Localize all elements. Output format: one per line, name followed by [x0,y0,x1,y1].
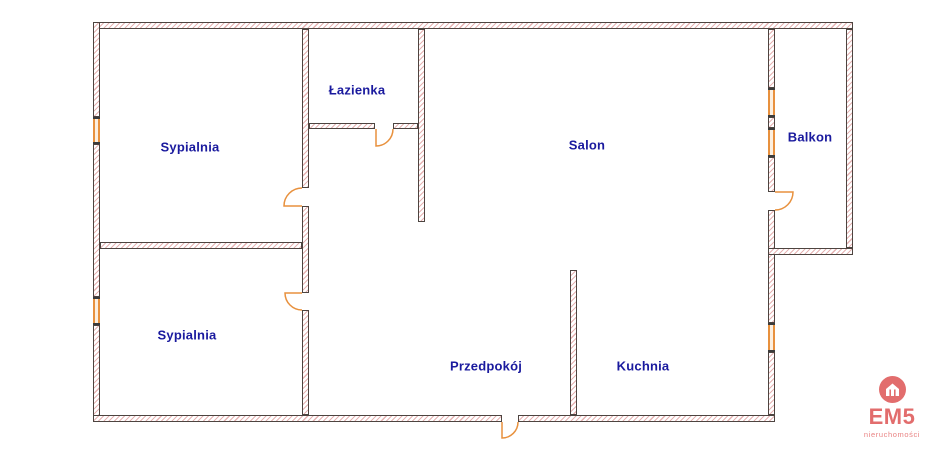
door-swings-layer [0,0,944,454]
wall-balcony-bottom [768,248,853,255]
door-balcony-icon [775,192,793,210]
wall-bottom-right [518,415,775,422]
wall-balcony-right [846,29,853,248]
room-label-kuchnia: Kuchnia [617,359,670,374]
room-label-sypialnia-lower: Sypialnia [158,328,217,343]
wall-right-seg1 [768,29,775,88]
door-entrance-icon [502,422,518,438]
wall-center-seg1 [302,29,309,188]
em5-house-icon [884,382,901,397]
window-bedroom-upper-icon [93,117,100,144]
wall-left-lower [93,325,100,422]
em5-logo: EM5 nieruchomości [856,376,928,439]
wall-top [93,22,853,29]
wall-left-upper [93,22,100,117]
wall-bathroom-bottom-left [309,123,375,129]
window-bedroom-lower-icon [93,297,100,325]
window-salon-1-icon [768,88,775,117]
wall-kitchen-divider [570,270,577,415]
wall-right-seg2 [768,117,775,128]
wall-bedroom-divider [100,242,302,249]
wall-right-seg3 [768,157,775,192]
window-kitchen-icon [768,323,775,352]
door-bedroom-lower-icon [285,293,302,310]
room-label-lazienka: Łazienka [329,83,386,98]
wall-right-seg5 [768,352,775,415]
door-bedroom-upper-icon [284,188,302,206]
door-bathroom-icon [376,129,393,146]
wall-right-seg4 [768,210,775,323]
wall-bathroom-right [418,29,425,222]
room-label-przedpokoj: Przedpokój [450,359,522,374]
floor-plan: Sypialnia Łazienka Salon Balkon Sypialni… [0,0,944,454]
wall-bottom-left [93,415,502,422]
wall-left-middle [93,144,100,297]
brand-tagline: nieruchomości [856,431,928,439]
brand-name: EM5 [856,406,928,428]
wall-center-seg2 [302,206,309,293]
wall-center-seg3 [302,310,309,415]
window-salon-2-icon [768,128,775,157]
wall-bathroom-bottom-right [393,123,418,129]
room-label-sypialnia-upper: Sypialnia [161,140,220,155]
em5-logo-circle [879,376,906,403]
room-label-salon: Salon [569,138,605,153]
room-label-balkon: Balkon [788,130,833,145]
